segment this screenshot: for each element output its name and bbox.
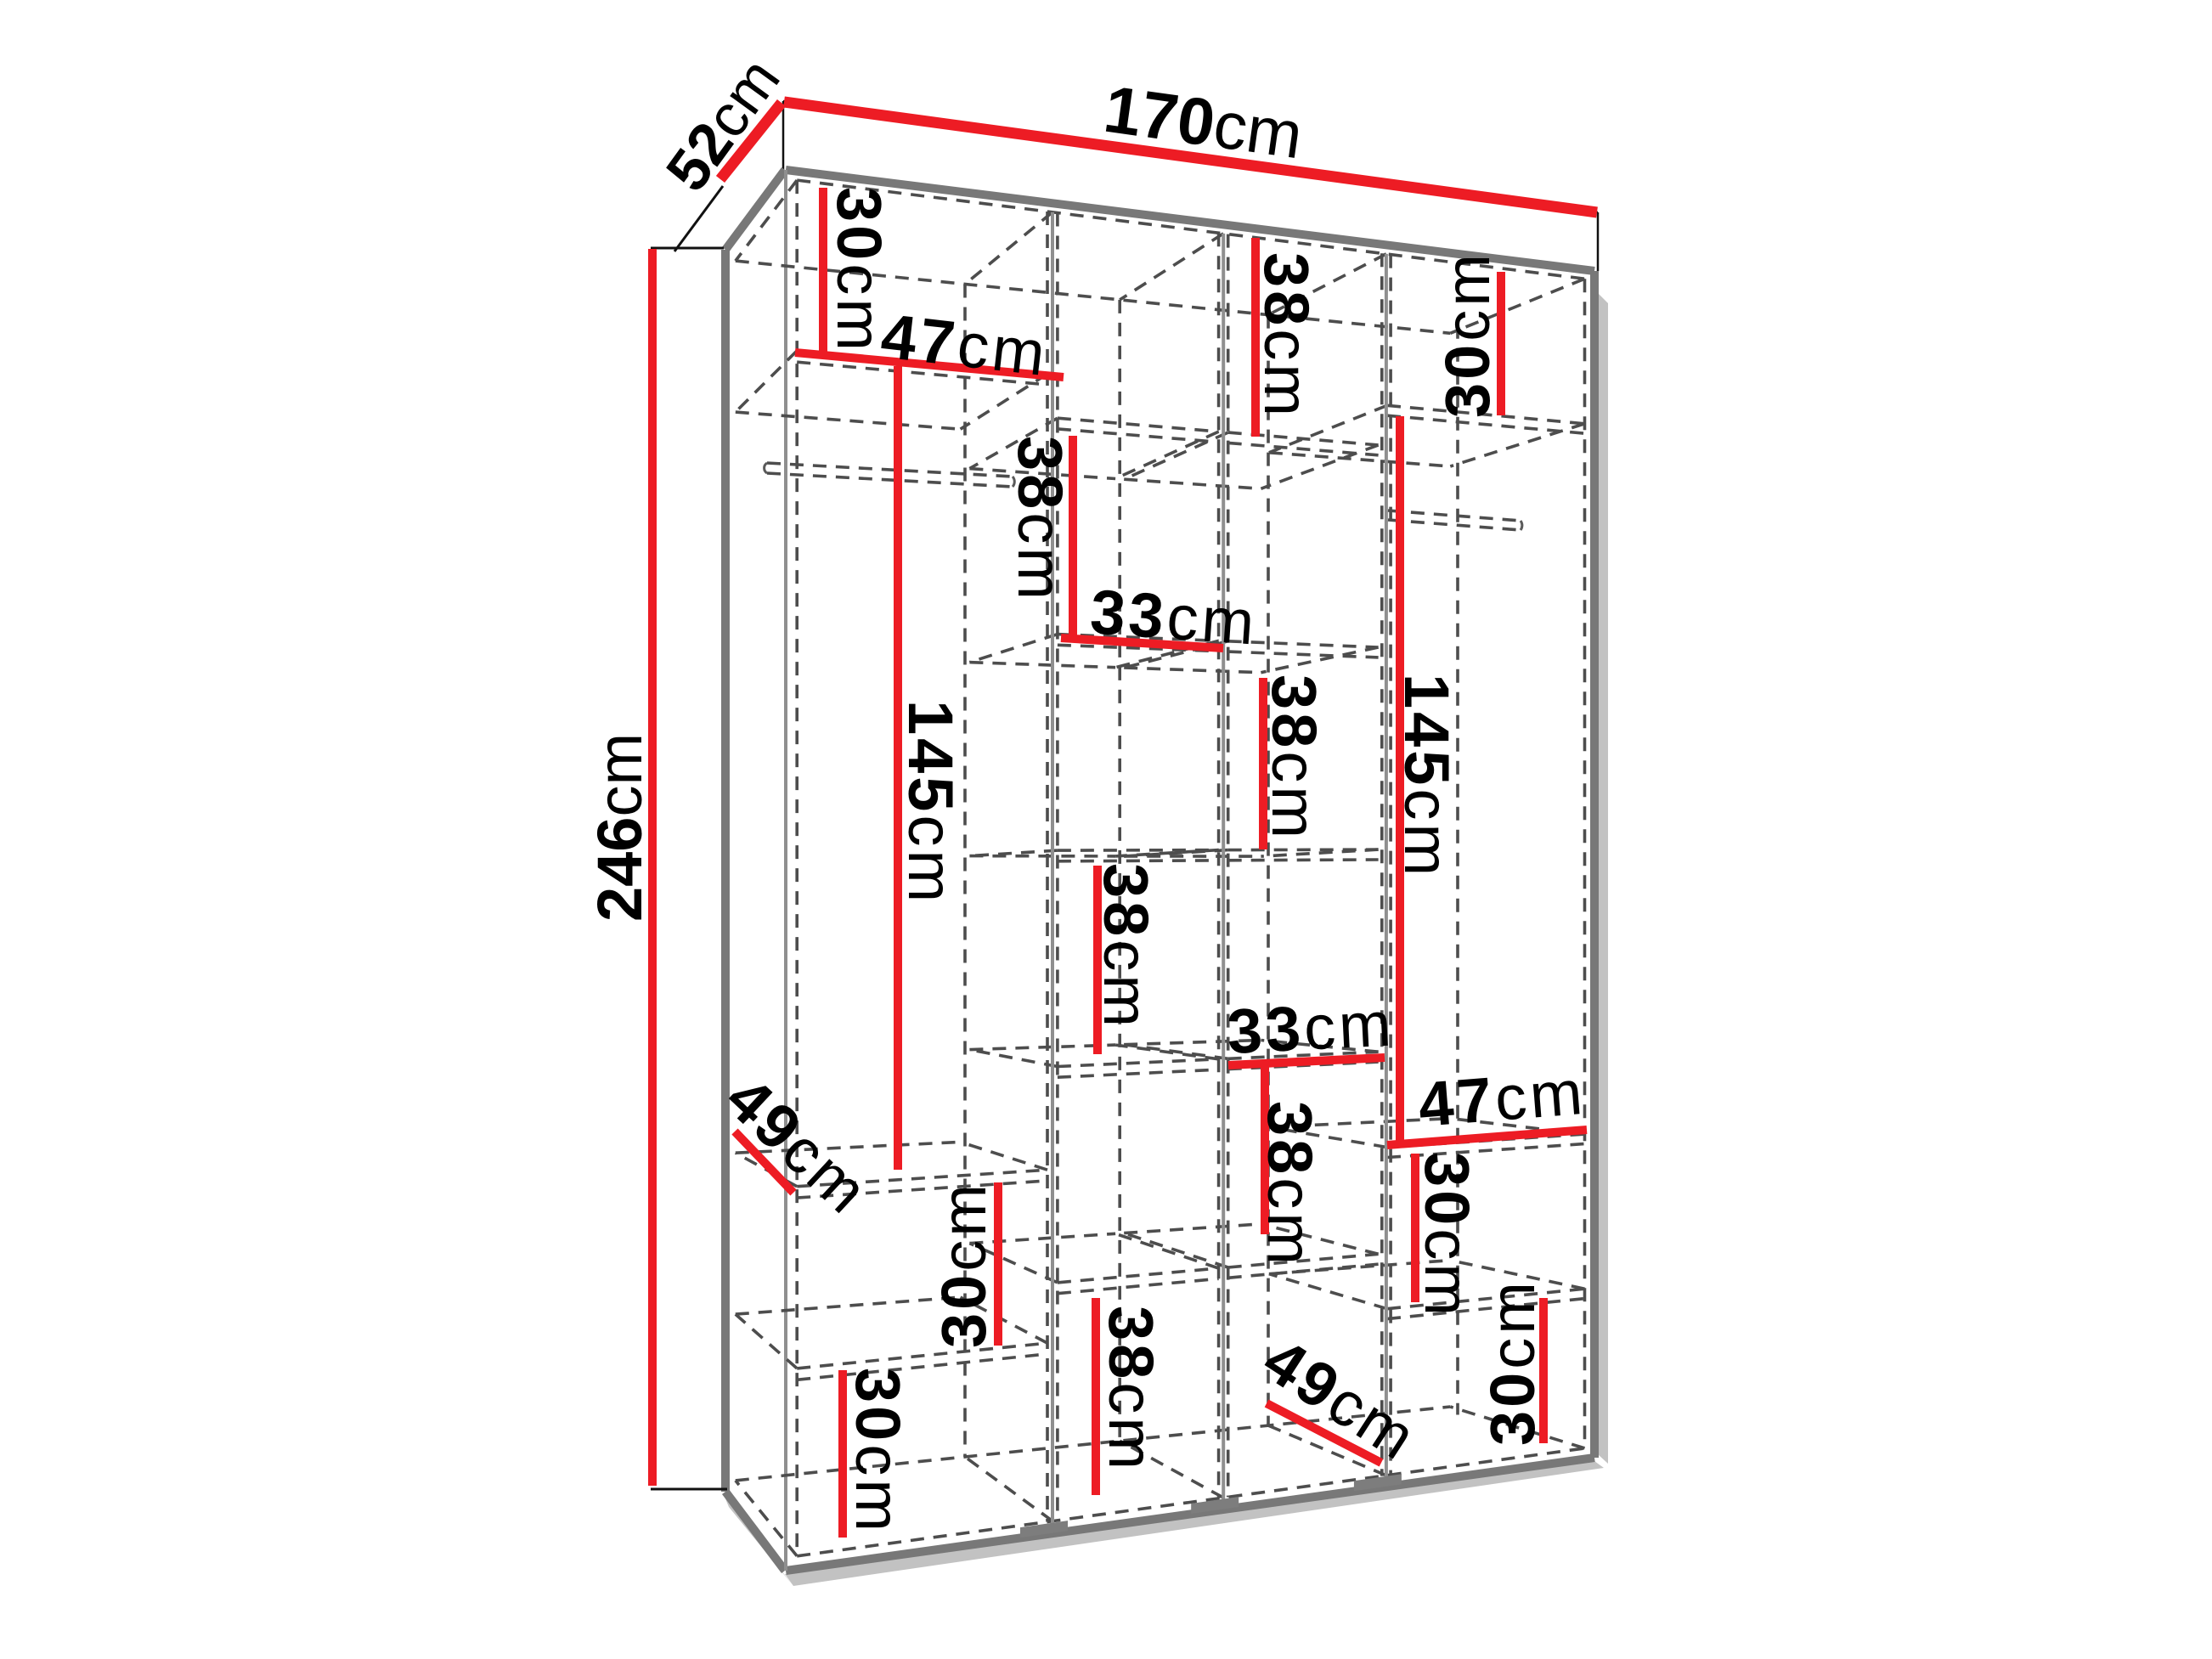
svg-text:47cm: 47cm bbox=[1416, 1057, 1588, 1140]
svg-text:30cm: 30cm bbox=[1477, 1278, 1548, 1446]
svg-text:38cm: 38cm bbox=[1251, 252, 1322, 420]
svg-text:38cm: 38cm bbox=[1091, 863, 1161, 1030]
svg-text:33cm: 33cm bbox=[1226, 988, 1397, 1067]
svg-text:30cm: 30cm bbox=[1432, 251, 1503, 418]
svg-text:38cm: 38cm bbox=[1259, 674, 1329, 842]
svg-text:246cm: 246cm bbox=[584, 733, 655, 922]
svg-text:38cm: 38cm bbox=[1096, 1306, 1166, 1473]
svg-text:30cm: 30cm bbox=[843, 1368, 913, 1535]
svg-text:33cm: 33cm bbox=[1088, 576, 1260, 658]
svg-text:38cm: 38cm bbox=[1255, 1101, 1325, 1268]
svg-text:145cm: 145cm bbox=[895, 700, 966, 906]
svg-text:145cm: 145cm bbox=[1391, 674, 1462, 879]
svg-text:30cm: 30cm bbox=[1412, 1152, 1482, 1319]
svg-text:30cm: 30cm bbox=[928, 1181, 999, 1348]
svg-text:38cm: 38cm bbox=[1005, 436, 1075, 603]
